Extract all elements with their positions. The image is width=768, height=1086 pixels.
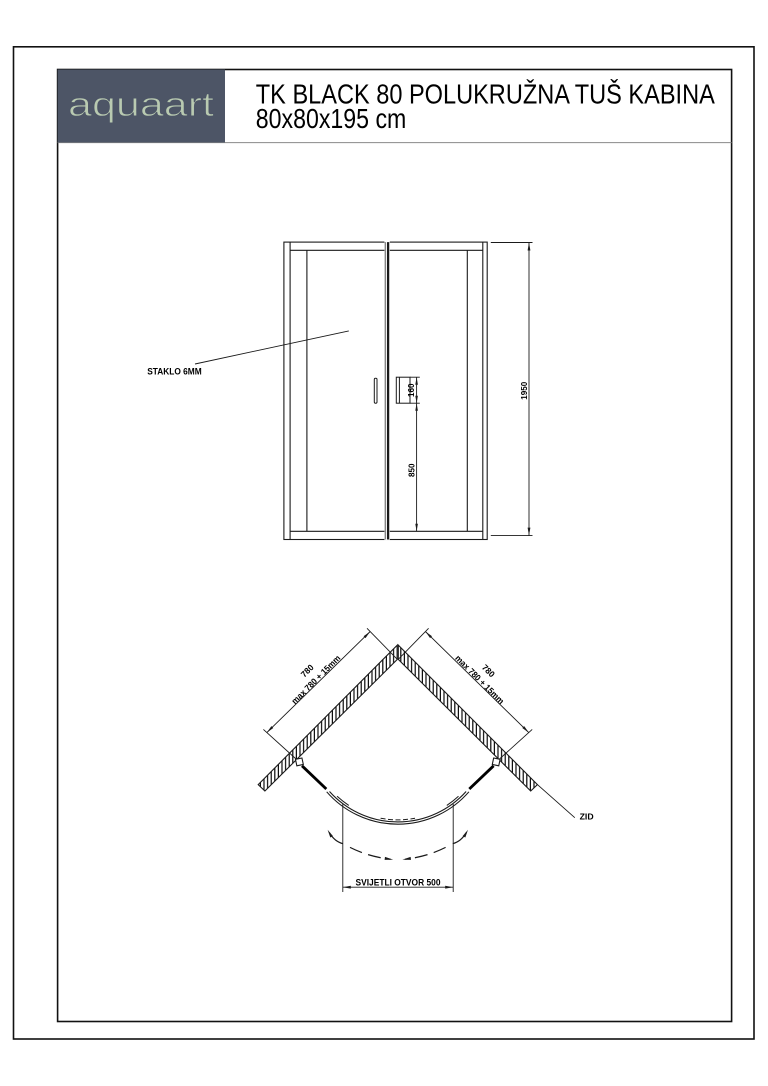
svg-text:max 780 + 15mm: max 780 + 15mm <box>453 653 506 706</box>
svg-text:80x80x195 cm: 80x80x195 cm <box>256 103 406 134</box>
svg-text:SVIJETLI OTVOR 500: SVIJETLI OTVOR 500 <box>356 878 441 888</box>
svg-text:1950: 1950 <box>519 382 529 400</box>
svg-text:160: 160 <box>406 383 416 397</box>
svg-text:STAKLO 6MM: STAKLO 6MM <box>147 367 202 377</box>
svg-text:aquaart: aquaart <box>68 86 215 124</box>
svg-text:ZID: ZID <box>580 812 594 822</box>
svg-text:850: 850 <box>406 463 416 477</box>
svg-text:max 780 + 15mm: max 780 + 15mm <box>289 653 342 706</box>
